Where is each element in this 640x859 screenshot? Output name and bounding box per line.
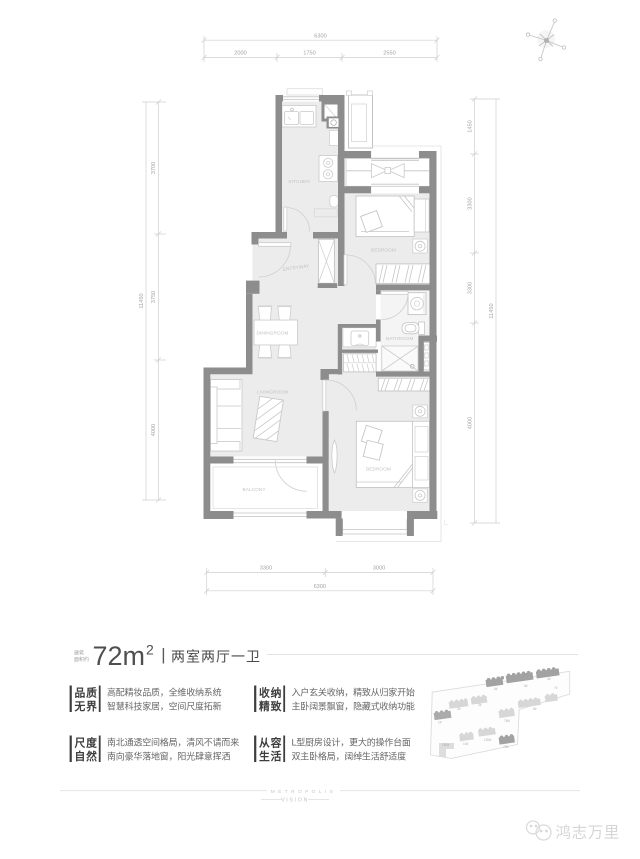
svg-text:11450: 11450	[139, 293, 145, 308]
svg-text:VISION: VISION	[281, 798, 309, 804]
svg-text:7B#: 7B#	[503, 745, 509, 749]
svg-text:11450: 11450	[489, 303, 495, 318]
svg-text:7#: 7#	[554, 686, 558, 690]
svg-text:品质: 品质	[75, 686, 98, 700]
svg-text:6300: 6300	[314, 33, 326, 39]
svg-text:8#: 8#	[533, 707, 537, 711]
svg-text:BALCONY: BALCONY	[243, 487, 267, 492]
svg-text:南向豪华落地窗，阳光肆意挥洒: 南向豪华落地窗，阳光肆意挥洒	[107, 751, 230, 762]
svg-text:精致: 精致	[259, 699, 282, 713]
svg-text:72m: 72m	[93, 641, 146, 671]
svg-text:BEDROOM: BEDROOM	[366, 467, 391, 472]
svg-text:建筑: 建筑	[74, 650, 84, 657]
svg-text:2: 2	[146, 642, 154, 658]
svg-text:1750: 1750	[303, 51, 315, 57]
svg-text:3750: 3750	[151, 291, 157, 303]
svg-text:12B#: 12B#	[484, 738, 492, 742]
svg-text:鸿志万里: 鸿志万里	[556, 824, 620, 842]
svg-text:1450: 1450	[468, 120, 474, 132]
svg-text:3700: 3700	[151, 162, 157, 174]
svg-text:双主卧格局，阔绰生活舒适度: 双主卧格局，阔绰生活舒适度	[292, 751, 407, 762]
svg-text:从容: 从容	[259, 736, 282, 750]
svg-text:3#: 3#	[478, 703, 482, 707]
svg-text:LIVINGROOM: LIVINGROOM	[257, 390, 288, 395]
svg-text:3300: 3300	[260, 566, 272, 572]
svg-text:6#: 6#	[494, 687, 498, 691]
svg-text:入户玄关收纳，精致从归家开始: 入户玄关收纳，精致从归家开始	[292, 687, 415, 698]
svg-text:DININGROOM: DININGROOM	[257, 331, 289, 336]
svg-text:BEDROOM: BEDROOM	[371, 248, 396, 253]
svg-text:3300: 3300	[468, 197, 474, 209]
svg-text:两室两厅一卫: 两室两厅一卫	[171, 649, 261, 665]
svg-text:智慧科技家居，空间尺度拓新: 智慧科技家居，空间尺度拓新	[107, 701, 222, 712]
svg-text:6300: 6300	[314, 584, 326, 590]
svg-text:南北通透空间格局，清风不请而来: 南北通透空间格局，清风不请而来	[107, 737, 239, 748]
svg-text:面积约: 面积约	[74, 656, 89, 663]
svg-text:尺度: 尺度	[75, 736, 98, 750]
svg-text:高配精妆品质，全维收纳系统: 高配精妆品质，全维收纳系统	[107, 687, 222, 698]
svg-text:自然: 自然	[75, 749, 98, 763]
svg-text:L型厨房设计，更大的操作台面: L型厨房设计，更大的操作台面	[292, 737, 411, 748]
svg-text:4#: 4#	[547, 677, 551, 681]
svg-text:3300: 3300	[468, 282, 474, 294]
svg-text:KITCHEN: KITCHEN	[289, 179, 310, 184]
svg-text:10#: 10#	[463, 742, 469, 746]
svg-text:生活: 生活	[259, 749, 282, 763]
svg-text:15B#: 15B#	[442, 743, 450, 747]
svg-text:4000: 4000	[468, 417, 474, 429]
svg-text:4000: 4000	[151, 424, 157, 436]
svg-text:METROPOLIS: METROPOLIS	[271, 789, 336, 795]
svg-text:7B#: 7B#	[504, 719, 510, 723]
svg-text:5#: 5#	[524, 684, 528, 688]
svg-text:无界: 无界	[74, 700, 98, 713]
svg-text:2550: 2550	[383, 51, 395, 57]
svg-text:收纳: 收纳	[259, 686, 282, 700]
svg-text:3000: 3000	[373, 566, 385, 572]
svg-text:2#: 2#	[457, 707, 461, 711]
svg-text:BATHROOM: BATHROOM	[386, 336, 414, 341]
svg-text:2000: 2000	[234, 51, 246, 57]
svg-text:主卧阔景飘窗，隐藏式收纳功能: 主卧阔景飘窗，隐藏式收纳功能	[292, 701, 415, 712]
svg-text:1#: 1#	[438, 721, 442, 725]
